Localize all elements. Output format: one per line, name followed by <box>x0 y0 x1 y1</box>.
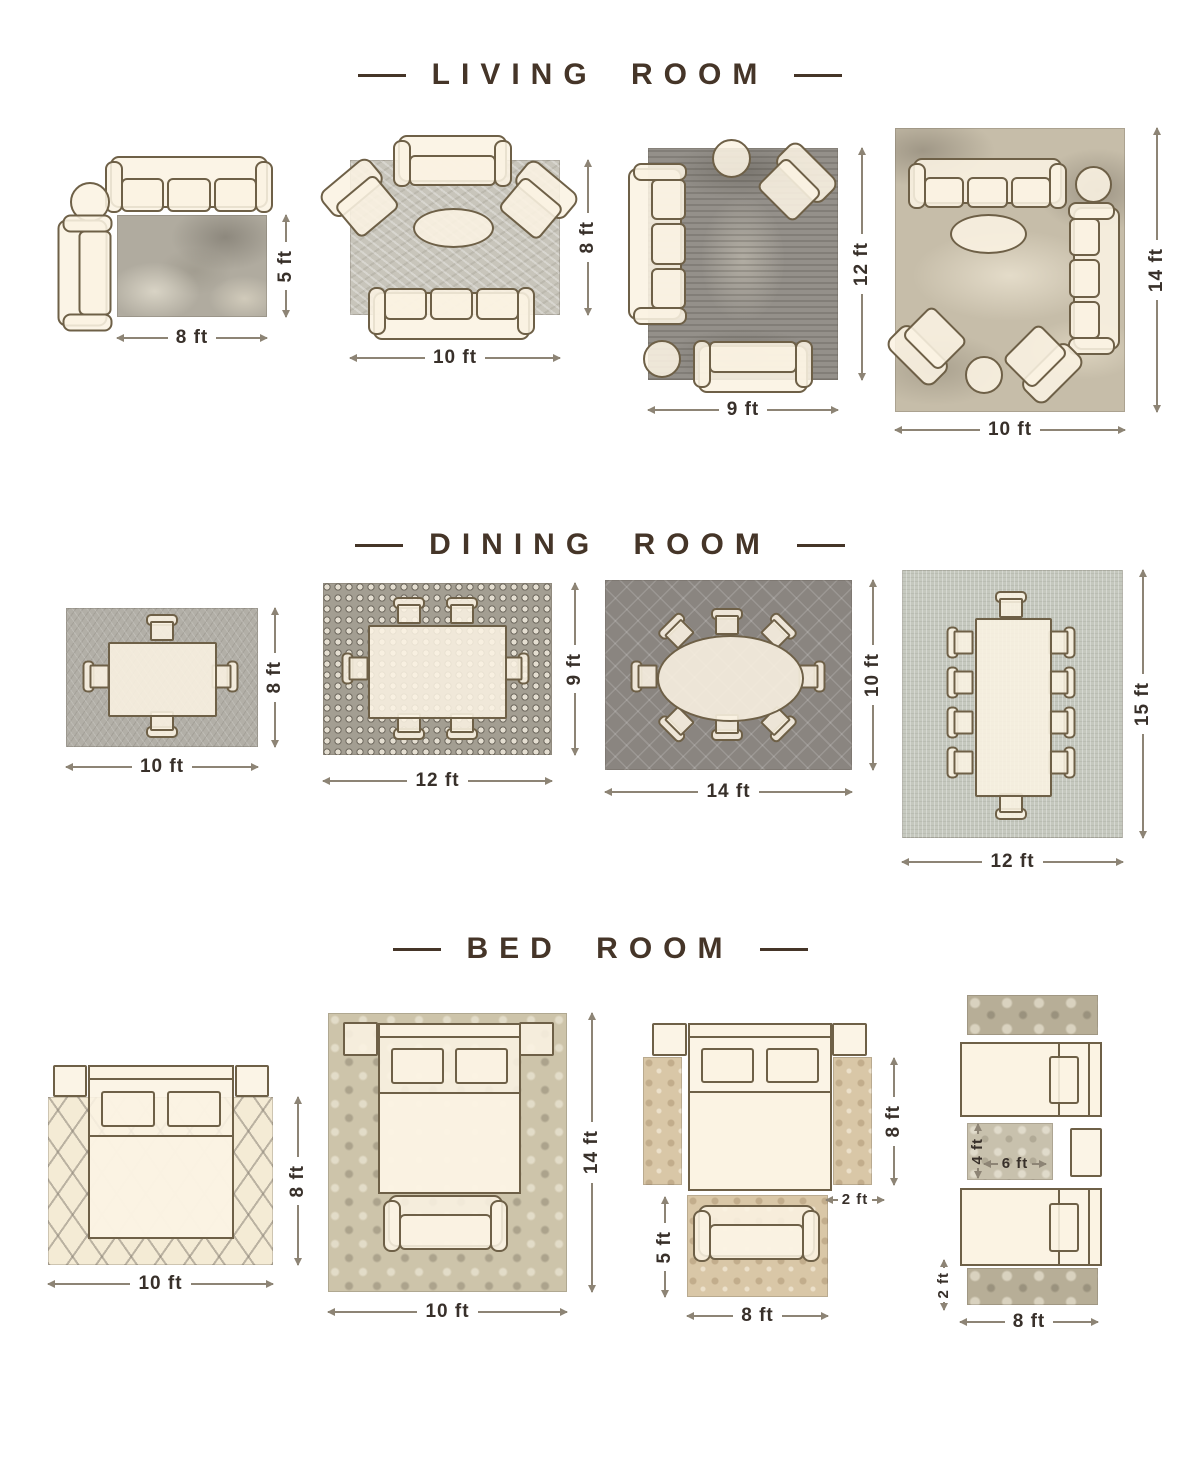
section-title-bed-room: BED ROOM <box>0 932 1200 966</box>
runner-height-dim: 8 ft <box>884 1058 903 1185</box>
section-title-text: BED ROOM <box>467 932 734 966</box>
round-ottoman <box>965 356 1003 394</box>
dining-chair <box>83 661 110 693</box>
runner-rug-top <box>967 995 1098 1035</box>
runner-width-dim: 2 ft <box>826 1192 884 1207</box>
title-dash <box>797 544 845 547</box>
queen-bed <box>688 1023 832 1191</box>
title-dash <box>794 74 842 77</box>
runner-rug-right <box>833 1057 872 1185</box>
oval-dining-table <box>657 635 804 722</box>
section-title-text: DINING ROOM <box>429 528 771 562</box>
rug-height-dim: 8 ft <box>288 1097 307 1265</box>
nightstand <box>519 1022 554 1056</box>
twin-bed <box>960 1042 1102 1117</box>
rug-width-dim: 10 ft <box>328 1302 567 1321</box>
center-rug-height-dim: 4 ft <box>970 1124 985 1178</box>
long-dining-table <box>975 618 1052 797</box>
bench <box>388 1195 503 1247</box>
settee <box>698 345 808 393</box>
dining-chair <box>1049 627 1076 659</box>
layout-width-dim: 8 ft <box>960 1312 1098 1331</box>
rug-width-dim: 12 ft <box>902 852 1123 871</box>
dining-chair <box>1049 707 1076 739</box>
title-dash <box>355 544 403 547</box>
rug-width-dim: 14 ft <box>605 782 852 801</box>
sofa <box>1073 207 1120 350</box>
dining-chair <box>393 597 425 624</box>
section-title-dining-room: DINING ROOM <box>0 528 1200 562</box>
rug-height-dim: 10 ft <box>863 580 882 770</box>
sofa <box>628 168 682 320</box>
oval-coffee-table <box>950 214 1027 254</box>
dining-chair <box>995 591 1027 618</box>
queen-bed <box>88 1065 234 1239</box>
queen-bed <box>378 1023 521 1194</box>
rug-width-dim: 10 ft <box>48 1274 273 1293</box>
sofa <box>913 158 1062 204</box>
nightstand <box>1070 1128 1102 1177</box>
rug-height-dim: 8 ft <box>265 608 284 747</box>
nightstand <box>652 1023 687 1056</box>
center-rug-width-dim: 6 ft <box>984 1156 1046 1171</box>
rug-width-dim: 8 ft <box>117 328 267 347</box>
dining-table <box>368 625 507 719</box>
rug-size-guide: LIVING ROOM 5 ft 8 ft 8 ft 10 ft <box>0 0 1200 1467</box>
settee <box>58 220 108 327</box>
rug-height-dim: 14 ft <box>1147 128 1166 412</box>
title-dash <box>358 74 406 77</box>
sofa <box>373 292 530 340</box>
dining-chair <box>1049 747 1076 779</box>
runner-rug-bottom <box>967 1268 1098 1305</box>
foot-rug-height-dim: 5 ft <box>655 1197 674 1297</box>
runner-rug-left <box>643 1057 682 1185</box>
oval-coffee-table <box>413 208 494 248</box>
dining-chair <box>947 667 974 699</box>
section-title-living-room: LIVING ROOM <box>0 58 1200 92</box>
rug-height-dim: 15 ft <box>1133 570 1152 838</box>
rug-width-dim: 12 ft <box>323 771 552 790</box>
twin-bed <box>960 1188 1102 1266</box>
nightstand <box>53 1065 87 1097</box>
bench <box>698 1205 815 1257</box>
settee <box>398 135 507 182</box>
dining-chair <box>995 793 1027 820</box>
rug-height-dim: 14 ft <box>582 1013 601 1292</box>
dining-chair <box>947 707 974 739</box>
rug-height-dim: 9 ft <box>565 583 584 755</box>
sofa <box>110 156 268 208</box>
rug-height-dim: 12 ft <box>852 148 871 380</box>
nightstand <box>235 1065 269 1097</box>
nightstand <box>832 1023 867 1056</box>
title-dash <box>393 948 441 951</box>
dining-chair <box>631 661 658 693</box>
title-dash <box>760 948 808 951</box>
dining-chair <box>1049 667 1076 699</box>
nightstand <box>343 1022 378 1056</box>
dining-chair <box>947 627 974 659</box>
rug-height-dim: 5 ft <box>276 215 295 317</box>
dining-chair <box>711 608 743 635</box>
round-side-table <box>1075 166 1112 203</box>
dining-chair <box>947 747 974 779</box>
foot-rug-width-dim: 8 ft <box>687 1306 828 1325</box>
round-side-table <box>643 340 681 378</box>
section-title-text: LIVING ROOM <box>432 58 769 92</box>
dining-chair <box>446 597 478 624</box>
runner-height-dim: 2 ft <box>936 1260 951 1310</box>
round-side-table <box>712 139 751 178</box>
rug-width-dim: 10 ft <box>895 420 1125 439</box>
rug-8x5 <box>117 215 267 317</box>
rug-width-dim: 10 ft <box>350 348 560 367</box>
dining-table <box>108 642 217 717</box>
dining-chair <box>146 614 178 641</box>
rug-width-dim: 9 ft <box>648 400 838 419</box>
rug-width-dim: 10 ft <box>66 757 258 776</box>
dining-chair <box>342 653 369 685</box>
rug-height-dim: 8 ft <box>578 160 597 315</box>
